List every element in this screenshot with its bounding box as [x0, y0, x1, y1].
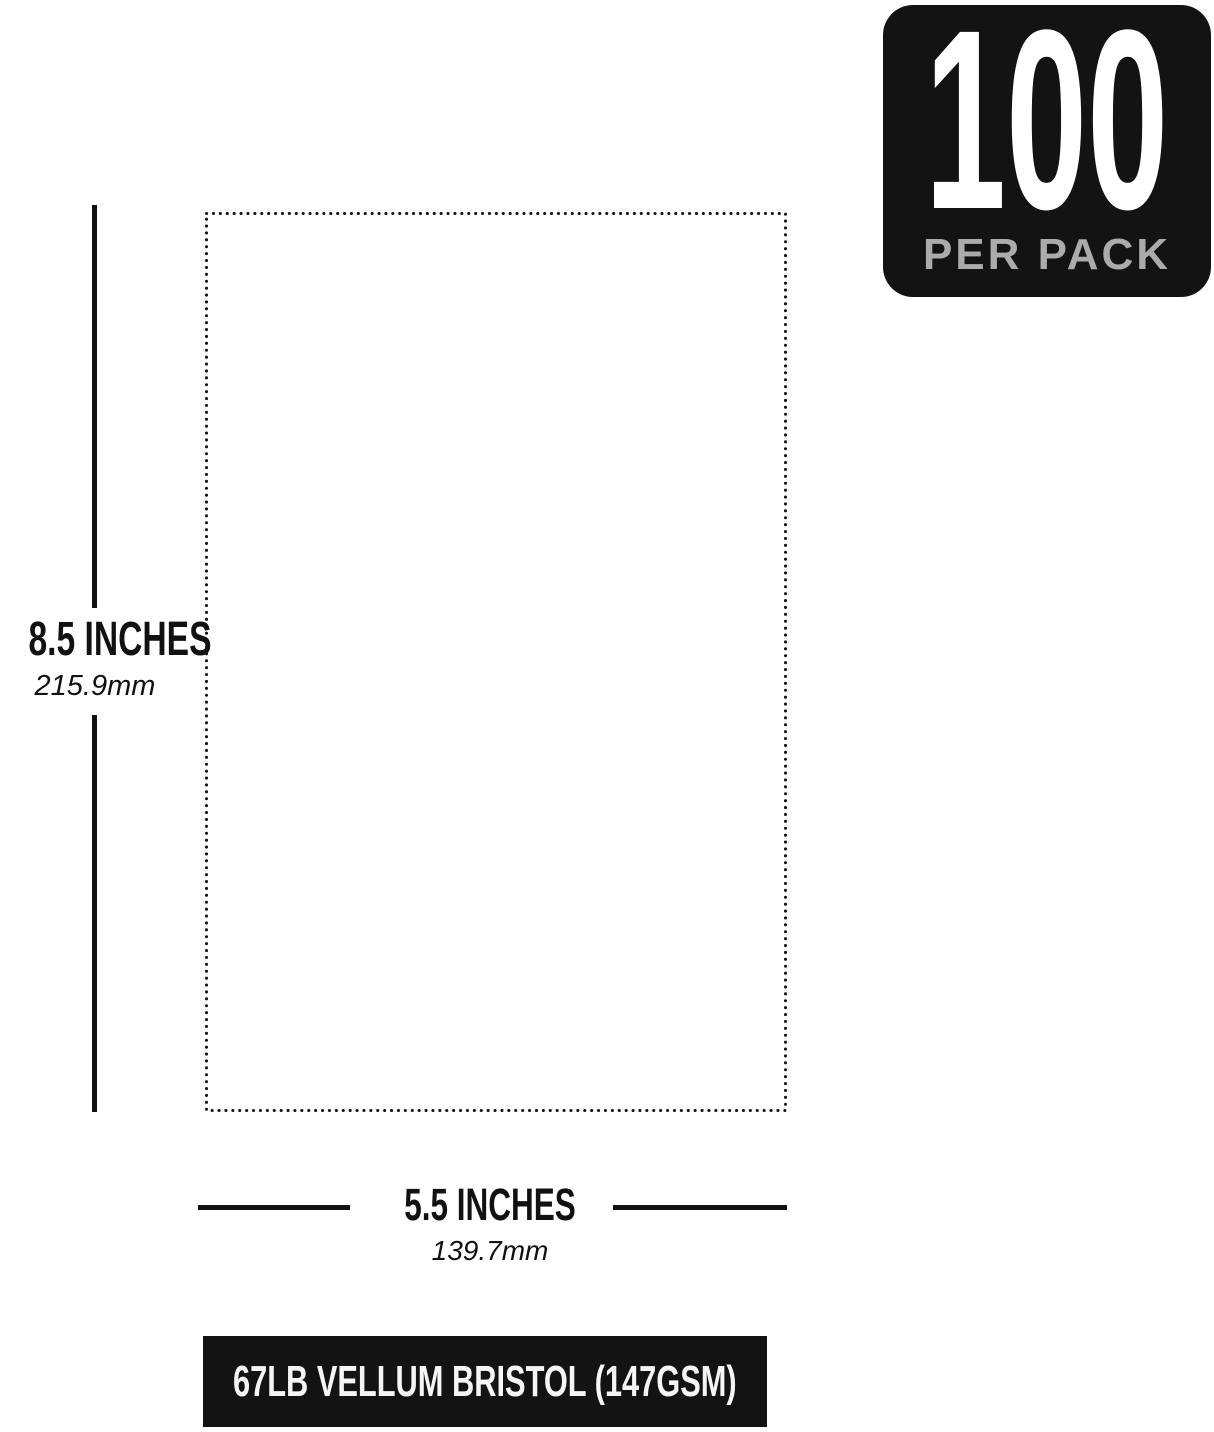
width-inches-label: 5.5 INCHES: [399, 1182, 581, 1227]
width-mm-label: 139.7mm: [360, 1235, 620, 1267]
width-measure-line-left: [198, 1205, 350, 1210]
pack-count: 100: [925, 17, 1168, 224]
height-measure-line-top: [92, 205, 97, 608]
height-label-group: 8.5 INCHES 215.9mm: [0, 616, 190, 703]
height-mm-label: 215.9mm: [0, 670, 190, 703]
width-measure-line-right: [613, 1205, 787, 1210]
width-label-group: 5.5 INCHES 139.7mm: [360, 1182, 620, 1267]
material-banner: 67LB VELLUM BRISTOL (147GSM): [203, 1336, 767, 1427]
per-pack-badge: 100 PER PACK: [883, 5, 1211, 297]
height-inches-label: 8.5 INCHES: [29, 616, 162, 664]
material-label: 67LB VELLUM BRISTOL (147GSM): [233, 1360, 737, 1404]
paper-sheet-outline: [205, 212, 787, 1112]
height-measure-line-bottom: [92, 715, 97, 1112]
product-dimension-diagram: 8.5 INCHES 215.9mm 5.5 INCHES 139.7mm 10…: [0, 0, 1214, 1432]
